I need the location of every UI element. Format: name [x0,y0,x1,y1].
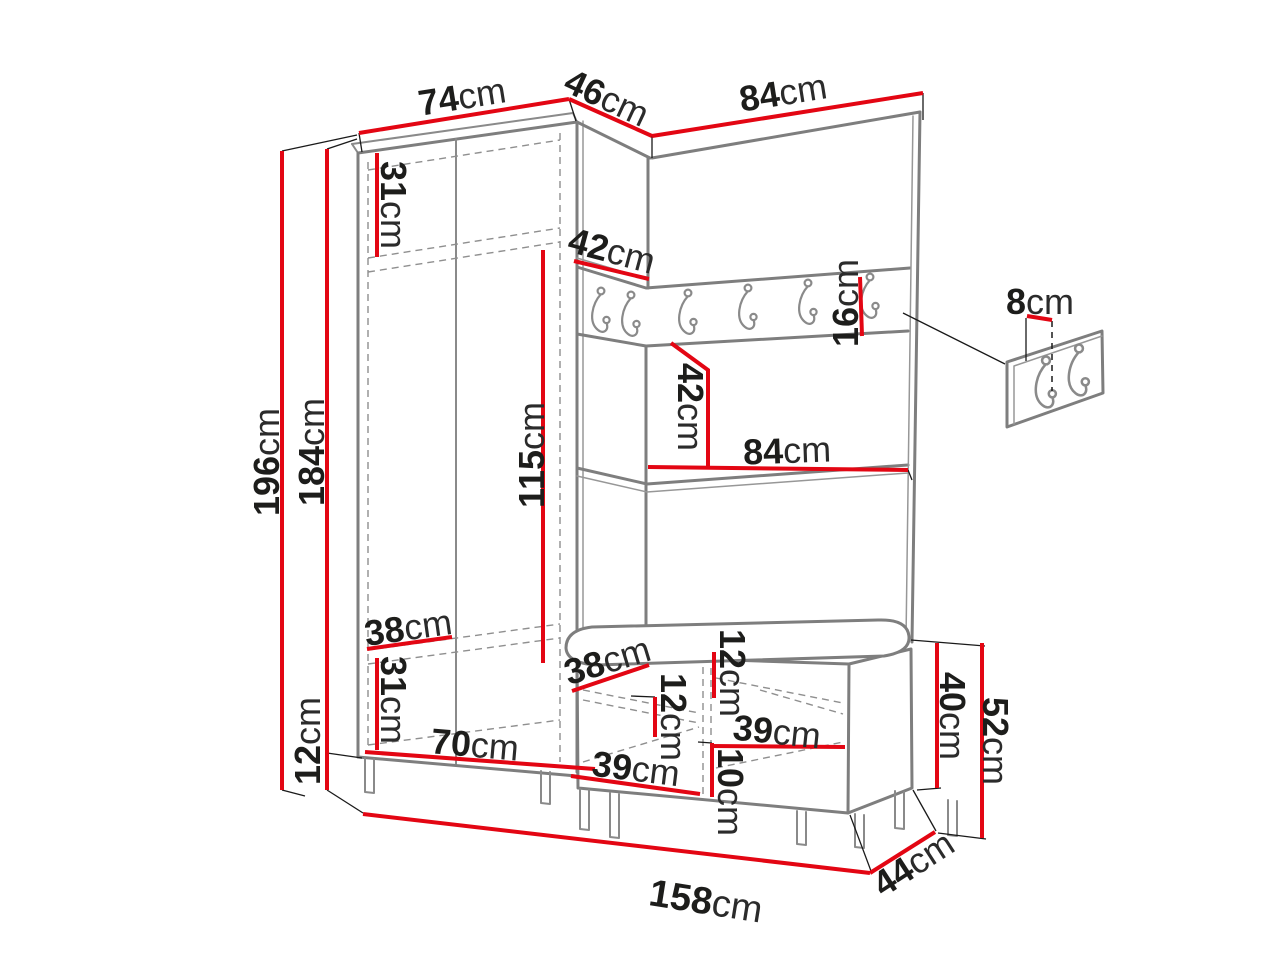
dim-label-40: 40cm [932,672,973,760]
dim-label-115: 115cm [511,402,552,508]
dim-label-74-top: 74cm [415,69,508,123]
corner-section [577,122,910,632]
leg [895,791,904,829]
dim-label-42-panel: 42cm [670,363,711,451]
dim-label-52: 52cm [975,697,1016,785]
dim-label-196: 196cm [246,408,287,516]
detail-connector-line [903,313,1005,364]
right-panel-top-edge [652,112,920,158]
dim-label-184: 184cm [291,398,332,506]
dim-label-84-mid: 84cm [742,428,831,472]
wardrobe-top-thickness [352,113,577,153]
dim-label-12-mid: 12cm [653,673,694,761]
leg [797,811,806,845]
dim-label-12-bench-top: 12cm [712,629,753,717]
dimension-labels: 74cm 46cm 84cm 196cm 184cm 31cm 42cm 115… [246,60,1074,931]
diagram-canvas: 74cm 46cm 84cm 196cm 184cm 31cm 42cm 115… [0,0,1280,960]
right-panel-right-edge [912,112,920,642]
leg [365,758,374,793]
dim-label-10: 10cm [710,748,751,836]
dim-line-158 [363,814,870,873]
dim-label-31-top: 31cm [373,161,414,249]
leg [580,789,589,830]
dim-label-158: 158cm [646,872,765,931]
dim-label-31-bottom: 31cm [373,656,414,744]
bench-right-side [848,649,912,813]
dim-label-38-wardrobe: 38cm [362,601,455,654]
dim-label-70: 70cm [429,720,520,769]
leg [610,793,619,838]
dim-label-16: 16cm [825,259,866,347]
dim-label-44: 44cm [865,822,961,904]
leg [948,800,957,836]
dim-label-12-legs: 12cm [287,697,328,785]
leg [541,771,550,804]
dim-label-8: 8cm [1006,281,1074,322]
wall-hook-panel-detail [903,313,1103,427]
furniture-dimension-diagram: 74cm 46cm 84cm 196cm 184cm 31cm 42cm 115… [0,0,1280,960]
